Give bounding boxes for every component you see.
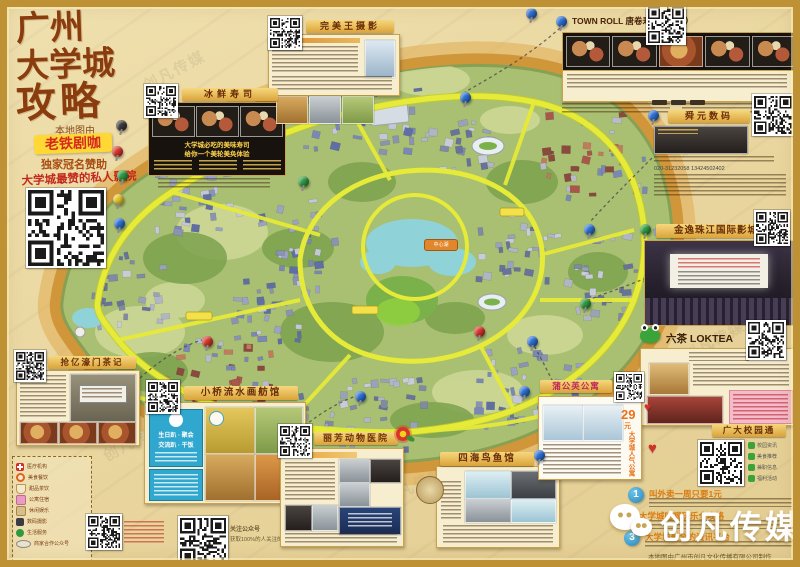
studio-photo: [276, 96, 308, 124]
sushi-photo: [196, 106, 239, 137]
photo-studio-qr-code: [268, 16, 302, 50]
legend-label: 医疗机构: [27, 463, 47, 470]
campus-pass-list: 校园资讯 美食推荐 兼职信息 福利活动: [748, 440, 777, 484]
campus-row-label: 兼职信息: [757, 464, 777, 471]
price-unit: 元: [624, 421, 631, 431]
legend-row: 公寓住宿: [16, 494, 88, 505]
map-legend: 医疗机构 美食餐饮 甜品茶饮 公寓住宿 休闲娱乐 数码摄影 生活服务 商家合作公…: [12, 456, 92, 562]
poster-title-line2: 大学城: [15, 45, 156, 83]
sushi-photo: [566, 36, 610, 67]
sushi-photo: [705, 36, 749, 67]
campus-row: 美食推荐: [748, 451, 777, 462]
brand-watermark: 创凡传媒: [610, 496, 800, 556]
brand-name: 创凡传媒: [660, 502, 800, 548]
loktea-product-photo: [649, 363, 689, 395]
boat-hall-qr-code: [146, 380, 180, 414]
campus-row-label: 美食推荐: [757, 453, 777, 460]
text-lines: [543, 444, 621, 474]
text-lines: [441, 481, 461, 519]
boat-hall-contact-panel: [149, 469, 203, 501]
shunyuan-qr-code: [752, 94, 794, 136]
clinic-photo: [312, 505, 338, 531]
map-pin-red: [202, 336, 213, 347]
text-lines: [82, 388, 122, 399]
sihai-title: 四海鸟鱼馆: [440, 452, 534, 466]
map-pin-green: [117, 170, 128, 181]
map-pin-green: [298, 176, 309, 187]
text-lines: [693, 364, 789, 387]
dandelion-title: 蒲公英公寓: [540, 380, 612, 393]
text-lines: [199, 160, 237, 171]
map-pin-blue: [584, 224, 595, 235]
jinyi-qr-code: [754, 210, 790, 246]
text-lines: [348, 513, 392, 529]
sponsor-name: 老铁剧咖: [34, 133, 113, 155]
campus-pass-qr-code: [698, 440, 744, 486]
legend-row: 医疗机构: [16, 461, 88, 472]
text-lines: [678, 271, 760, 284]
leisure-icon: [16, 506, 26, 516]
west-landmark: [75, 327, 85, 337]
wechat-icon: [748, 475, 755, 482]
dandelion-vertical-note: 大学城人气公寓: [625, 431, 635, 477]
fish-tank-photo: [465, 499, 511, 523]
sushi-fresh-qr-code: [144, 84, 178, 118]
clinic-photo: [339, 459, 370, 483]
poster-title-line3: 攻略: [15, 80, 156, 125]
fish-tank-photo: [465, 471, 511, 499]
map-pin-green: [580, 298, 591, 309]
food-photo: [98, 422, 136, 444]
room-photo: [543, 405, 583, 441]
text-lines: [733, 394, 788, 420]
sushi-fresh-line2: 给你一个美轮美奂体验: [149, 148, 285, 158]
text-lines: [154, 160, 192, 171]
sihai-pin: [534, 450, 545, 461]
poster-title-line1: 广州: [15, 8, 156, 47]
sushi-photo: [752, 36, 796, 67]
interior-photo: [205, 454, 255, 501]
map-pin-dark: [116, 120, 127, 131]
boat-hall-line1: 生日趴 · 聚会: [150, 430, 202, 439]
shunyuan-pin: [648, 110, 659, 121]
flower-icon: [396, 427, 410, 441]
town-roll-qr-code: [646, 5, 686, 45]
town-roll-pin: [556, 16, 567, 27]
campus-row-label: 福利活动: [757, 475, 777, 482]
map-pin-blue: [527, 336, 538, 347]
service-icon: [16, 529, 24, 537]
text-lines: [654, 174, 786, 198]
jinyi-pin: [640, 224, 651, 235]
clinic-photo: [370, 459, 401, 483]
legend-label: 数码摄影: [27, 518, 47, 525]
food-photo: [20, 422, 58, 444]
loktea-qr-code: [746, 320, 786, 360]
shunyuan-store-photo: [654, 126, 748, 154]
sihai-logo: [416, 476, 444, 504]
jinyi-cinema-photo: [644, 240, 794, 326]
text-lines: [272, 76, 392, 91]
map-pin-red: [112, 146, 123, 157]
apartment-icon: [16, 495, 26, 505]
sushi-fresh-title: 冰鲜寿司: [182, 88, 278, 101]
fish-tank-photo: [511, 499, 556, 523]
map-pin-blue: [355, 391, 366, 402]
text-lines: [654, 156, 774, 164]
legend-label: 商家合作公众号: [34, 540, 69, 547]
text-lines: [154, 474, 198, 496]
camera-icon: [16, 518, 24, 526]
text-lines: [285, 462, 335, 502]
credit-line: 本地图由广州市创凡文化传播有限公司制作: [648, 551, 772, 561]
legend-row: 甜品茶饮: [16, 483, 88, 494]
map-pin-red: [474, 326, 485, 337]
haomen-title: 抢亿濠门茶记: [48, 356, 136, 369]
food-icon: [16, 473, 25, 482]
lifang-qr-code: [278, 424, 312, 458]
dandelion-qr-code: [614, 372, 644, 402]
heart-icon: ♥: [648, 440, 657, 457]
logo-circle: [209, 411, 224, 426]
title-block: 广州 大学城 攻略: [16, 10, 156, 122]
storefront-sign: [79, 385, 127, 403]
haomen-qr-code: [14, 350, 46, 382]
campus-row: 兼职信息: [748, 462, 777, 473]
text-lines: [155, 452, 197, 463]
dessert-icon: [16, 484, 26, 494]
wechat-icon: [748, 442, 755, 449]
bottom-left-qr-code: [86, 514, 122, 550]
map-pin-yellow: [113, 194, 124, 205]
text-lines: [689, 352, 749, 361]
dandelion-card: 29 元 大学城人气公寓: [538, 396, 642, 480]
lifang-logo-panel: [339, 507, 401, 535]
dandelion-pin: [519, 386, 530, 397]
boat-hall-blue-panel: 生日趴 · 聚会 交流趴 · 干饭: [149, 409, 203, 467]
room-photo: [583, 405, 623, 441]
hospital-icon: [16, 463, 24, 471]
center-lake-label: 中心湖: [424, 239, 458, 251]
shunyuan-title: 舜元数码: [668, 110, 750, 123]
map-pin-blue: [114, 218, 125, 229]
wechat-icon: [748, 453, 755, 460]
text-lines: [285, 533, 397, 543]
campus-row-label: 校园资讯: [757, 442, 777, 449]
stadium-north: [472, 137, 504, 155]
legend-label: 生活服务: [27, 529, 47, 536]
loktea-contact-box: [729, 390, 793, 424]
campus-pass-title: 广大校园通: [712, 424, 786, 437]
poster: 创凡传媒 创凡传媒 创凡传媒 创凡传媒 创凡传媒 创凡传媒 创凡传媒 创凡传媒 …: [0, 0, 800, 567]
legend-label: 甜品茶饮: [29, 485, 49, 492]
legend-row: 商家合作公众号: [16, 538, 88, 549]
text-lines: [243, 160, 281, 171]
legend-row: 休闲娱乐: [16, 505, 88, 516]
boat-hall-title: 小桥流水画舫馆: [184, 386, 298, 400]
bottom-center-qr-code: [178, 516, 228, 566]
price-value: 29: [621, 407, 635, 422]
sponsor-qr-code: [26, 188, 106, 268]
legend-label: 美食餐饮: [28, 474, 48, 481]
shunyuan-phone: 020-31232058 13424502402: [654, 166, 792, 172]
text-lines: [567, 74, 787, 90]
heart-icon: ♥: [644, 400, 651, 414]
wechat-bubble-icon: [631, 518, 652, 536]
legend-label: 公寓住宿: [29, 496, 49, 503]
legend-label: 休闲娱乐: [29, 507, 49, 514]
campus-row: 校园资讯: [748, 440, 777, 451]
clinic-photo: [285, 505, 312, 531]
studio-photo: [309, 96, 341, 124]
partner-icon: [16, 540, 31, 548]
frog-icon: [640, 328, 660, 343]
shunyuan-info: 020-31232058 13424502402: [654, 156, 792, 200]
text-lines: [658, 129, 698, 134]
cinema-screen: [670, 254, 768, 288]
map-pin-blue: [526, 8, 537, 19]
logo-circle: [169, 413, 183, 427]
stadium-south: [478, 294, 506, 310]
text-lines: [678, 258, 760, 268]
wechat-icon: [748, 464, 755, 471]
text-lines: [158, 178, 270, 190]
map-pin-blue: [460, 92, 471, 103]
text-lines: [124, 521, 164, 543]
lifang-card: [280, 448, 404, 547]
lifang-title: 丽芳动物医院: [314, 432, 398, 445]
loktea-storefront-photo: [647, 396, 723, 424]
legend-row: 美食餐饮: [16, 472, 88, 483]
photo-studio-title: 完美王摄影: [306, 20, 394, 33]
haomen-storefront-photo: [70, 374, 136, 422]
portrait-photo: [365, 40, 395, 78]
campus-row: 福利活动: [748, 473, 777, 484]
legend-row: 数码摄影: [16, 516, 88, 527]
food-photo: [59, 422, 97, 444]
boat-hall-line2: 交流趴 · 干饭: [150, 440, 202, 449]
legend-row: 生活服务: [16, 527, 88, 538]
text-lines: [443, 525, 553, 543]
clinic-photo: [339, 483, 370, 507]
studio-photo: [342, 96, 374, 124]
